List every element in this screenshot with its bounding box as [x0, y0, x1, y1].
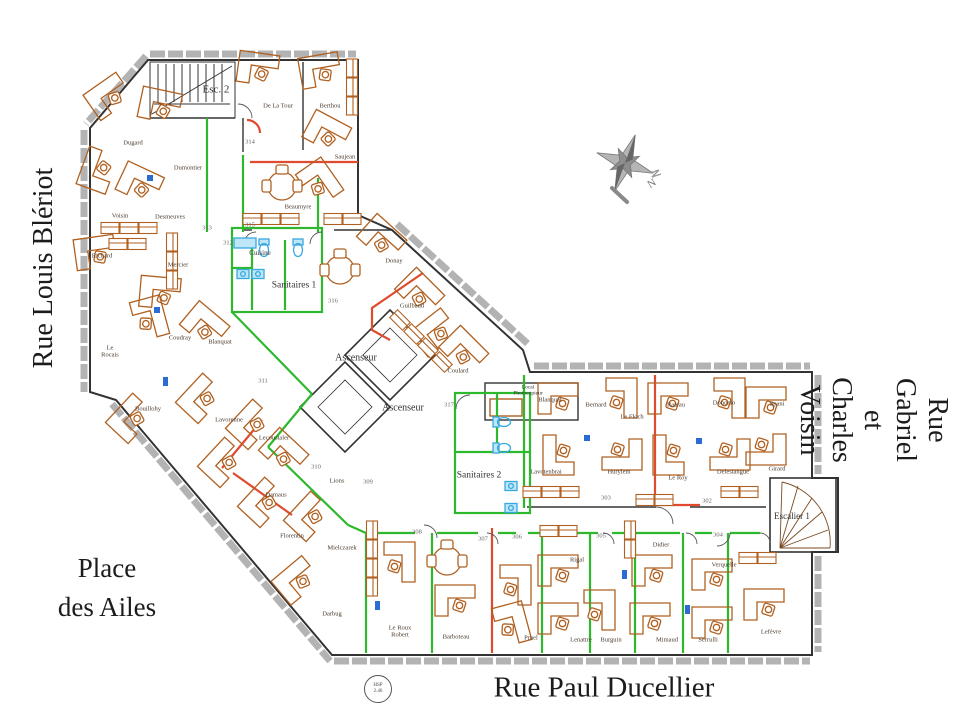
compass-north-label: N — [645, 177, 658, 191]
window-bands — [84, 54, 818, 661]
compass-rose-icon: N — [587, 125, 664, 202]
height-stamp: HSP 2.46 — [364, 675, 392, 703]
red-partitions — [222, 120, 700, 653]
street-label-rue-louis-bleriot: Rue Louis Blériot — [28, 168, 60, 369]
escalier1-stairs-icon — [770, 478, 836, 552]
stamp-bottom-text: 2.46 — [374, 689, 383, 695]
street-label-place-des-ailes: Place des Ailes — [58, 549, 156, 627]
floor-plan-page: N Esc. 2CuisineSanitaires 1AscenseurAsce… — [0, 0, 960, 720]
street-label-rue-gabriel-voisin: Rue Gabriel et Charles Voisin — [793, 377, 953, 464]
street-label-rue-paul-ducellier: Rue Paul Ducellier — [494, 672, 715, 705]
